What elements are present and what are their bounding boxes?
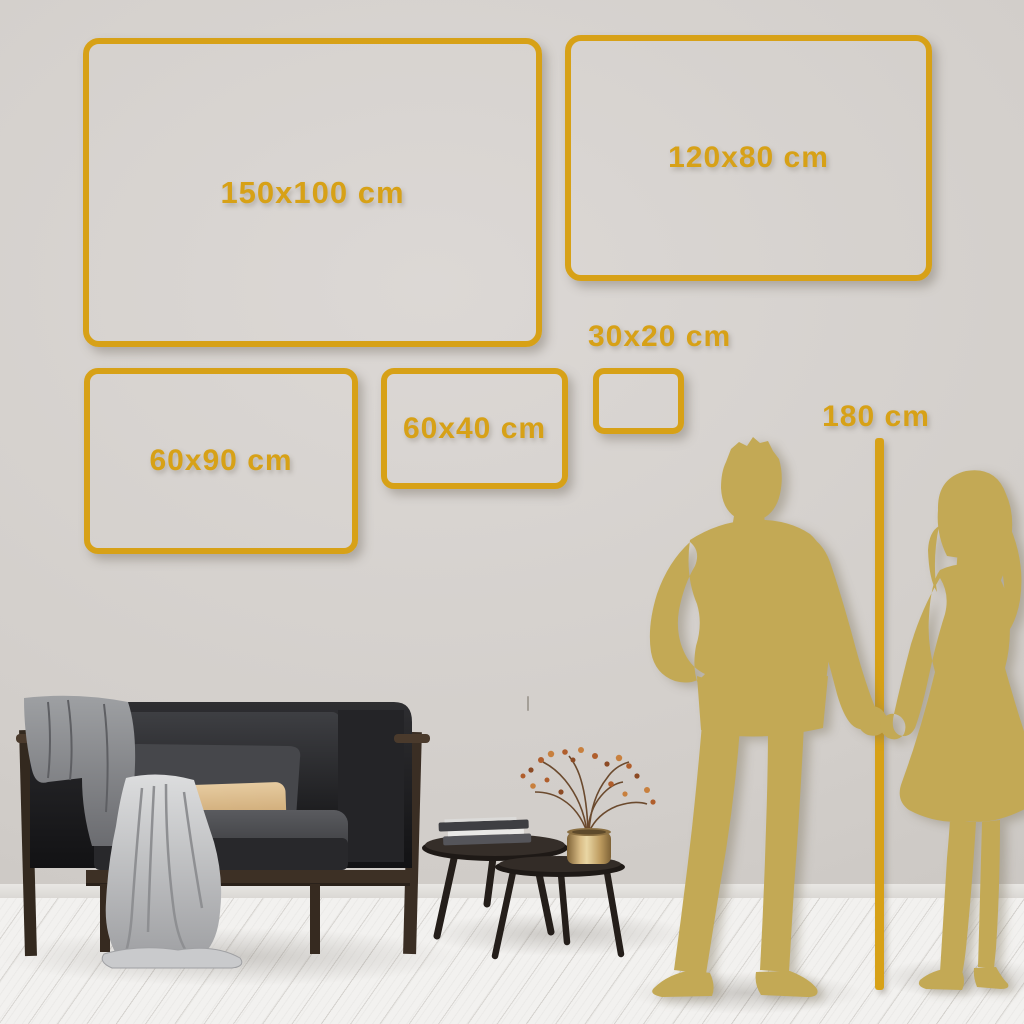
wall-nail-shadow [527,696,529,711]
branch-berries [521,747,656,805]
size-label-120x80: 120x80 cm [668,143,829,173]
woman-silhouette [880,470,1024,990]
size-frame-120x80: 120x80 cm [565,35,932,281]
size-label-60x40: 60x40 cm [403,414,546,444]
size-label-30x20: 30x20 cm [588,322,731,352]
size-label-60x90: 60x90 cm [149,446,292,476]
man-silhouette [650,437,887,997]
size-label-150x100: 150x100 cm [220,177,404,208]
blanket-floor-pool [102,948,242,968]
couple-silhouette [640,428,1024,1008]
small-table-legs [495,872,621,956]
sofa-illustration [8,692,438,972]
size-guide-scene: 150x100 cm 120x80 cm 60x90 cm 60x40 cm 3… [0,0,1024,1024]
size-frame-60x90: 60x90 cm [84,368,358,554]
gold-vase [567,832,611,864]
size-frame-30x20 [593,368,684,434]
size-frame-150x100: 150x100 cm [83,38,542,347]
vase-opening [572,830,606,835]
size-frame-60x40: 60x40 cm [381,368,568,489]
books-stack [438,816,531,845]
